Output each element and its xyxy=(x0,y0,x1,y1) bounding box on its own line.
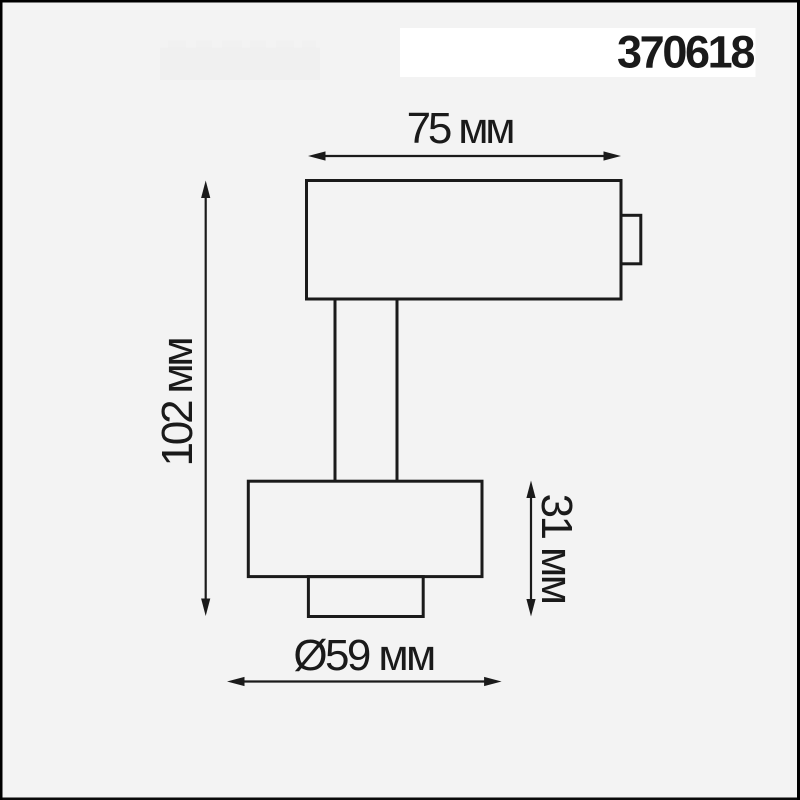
svg-text:370618: 370618 xyxy=(617,27,754,78)
svg-text:Ø59 мм: Ø59 мм xyxy=(293,631,434,680)
svg-text:31 мм: 31 мм xyxy=(532,494,581,603)
svg-text:75 мм: 75 мм xyxy=(407,104,514,153)
svg-text:102 мм: 102 мм xyxy=(153,339,202,467)
